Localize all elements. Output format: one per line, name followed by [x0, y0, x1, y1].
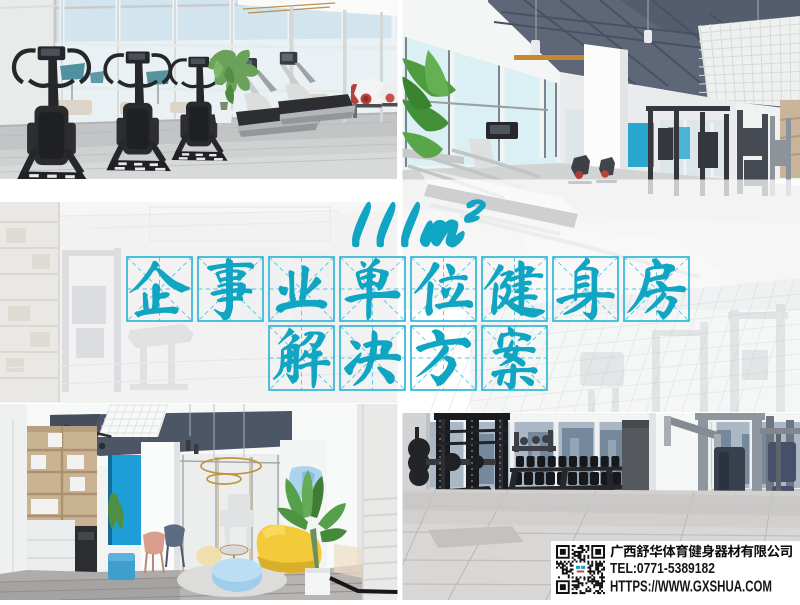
svg-text:TEL:0771-5389182: TEL:0771-5389182	[610, 560, 715, 577]
svg-text:HTTPS://WWW.GXSHUA.COM: HTTPS://WWW.GXSHUA.COM	[610, 578, 772, 595]
